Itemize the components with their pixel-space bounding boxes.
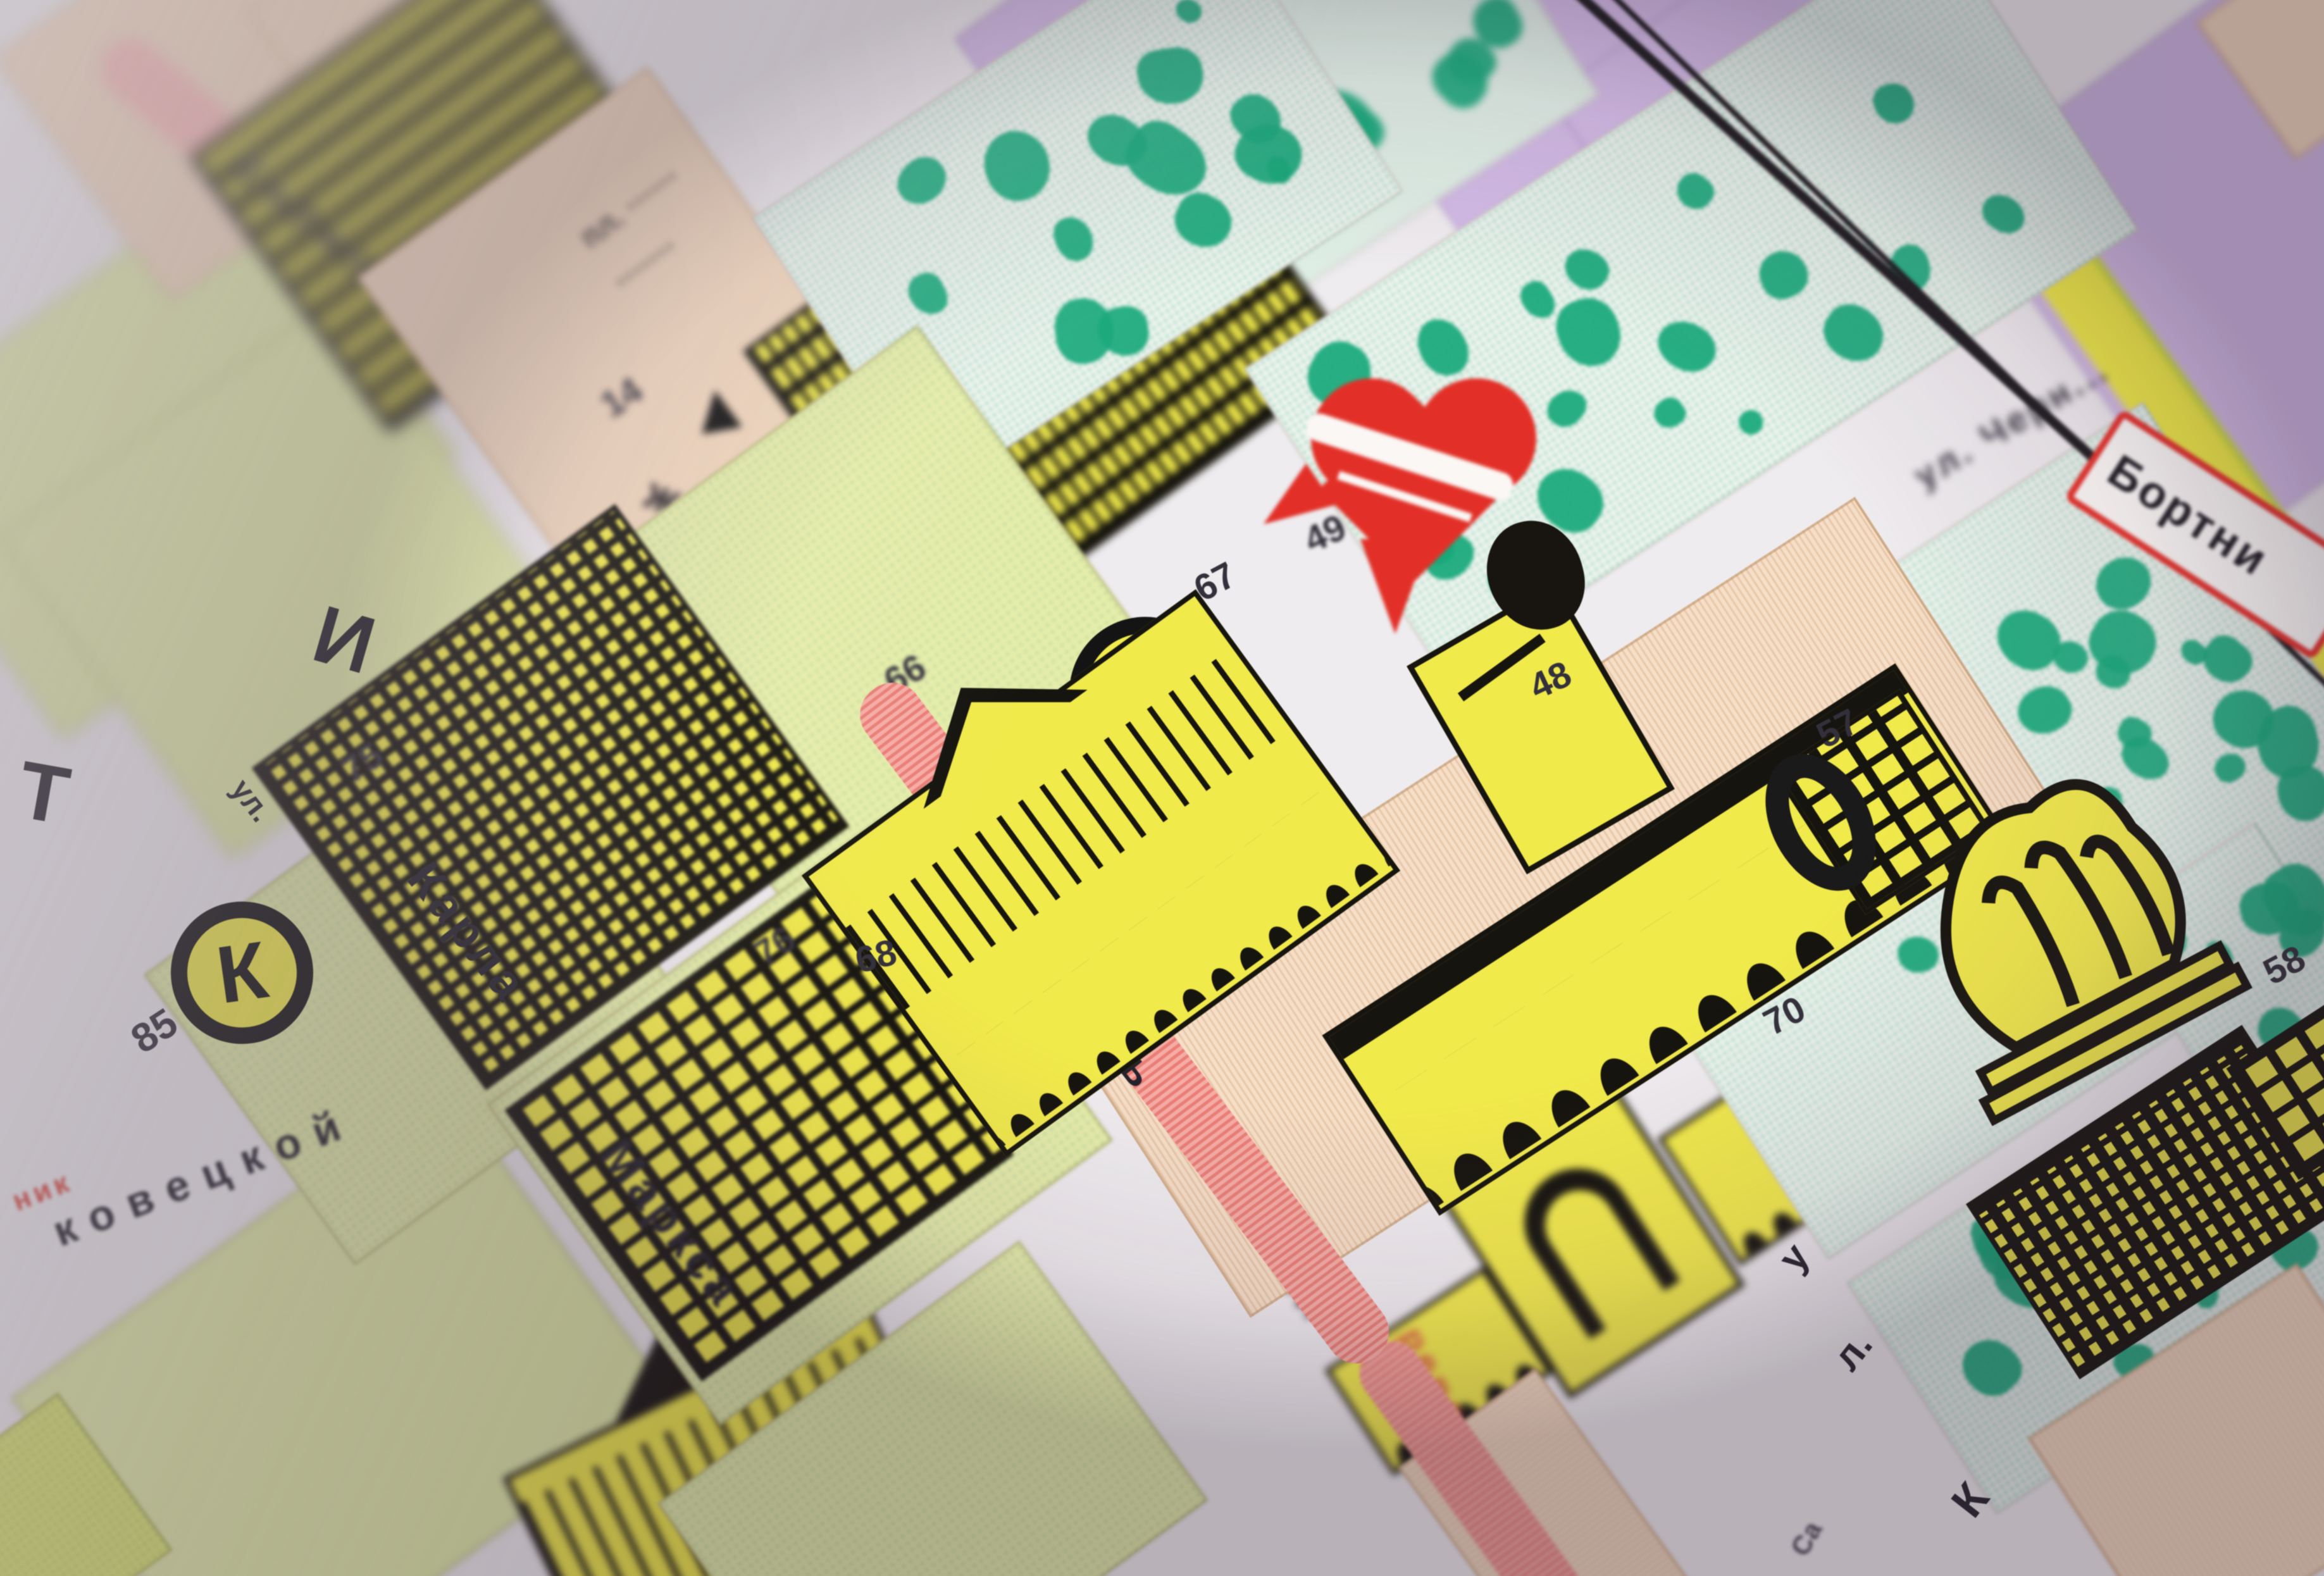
city-block — [1398, 1368, 1694, 1576]
tree-clump-icon — [1515, 276, 1560, 325]
tree-clump-icon — [1301, 80, 1385, 159]
city-block — [144, 726, 697, 1265]
poi-number-61: 61 — [995, 1416, 1048, 1470]
pink-street-main — [848, 671, 1401, 1375]
railway-line — [1566, 0, 2306, 650]
pink-street-bend — [638, 500, 929, 759]
poi-number-71: 71 — [2131, 1279, 2187, 1335]
street-name-cherny: ул. Черн... — [1906, 348, 2116, 497]
poi-number-14: 14 — [593, 369, 650, 426]
place-label-bortni: Бортни — [2099, 445, 2278, 586]
tree-clump-icon — [2057, 1275, 2089, 1310]
city-block — [555, 325, 1159, 920]
building-colonnade — [1322, 663, 2013, 1215]
blur-zone-mild: Бортни 49 ковецкой ник Маркса 66 75 76 7… — [0, 0, 2324, 1576]
building-large-block — [743, 61, 1358, 648]
tree-clump-icon — [1412, 313, 1474, 382]
pink-street-upper — [88, 26, 757, 601]
tree-clump-icon — [1649, 392, 1691, 433]
tree-clump-icon — [2090, 649, 2137, 696]
tree-clump-icon — [2244, 1057, 2298, 1107]
tree-clump-icon — [2079, 600, 2166, 685]
tree-clump-icon — [1477, 534, 1558, 614]
city-block — [2027, 1263, 2324, 1576]
arch-row — [1353, 1308, 1546, 1470]
poi-number-66: 66 — [877, 645, 933, 702]
tree-clump-icon — [1196, 164, 1286, 259]
tree-clump-icon — [2265, 1219, 2324, 1279]
tree-clump-icon — [2047, 635, 2094, 681]
tree-clump-icon — [1650, 309, 1725, 383]
tree-clump-icon — [1752, 244, 1814, 306]
poi-number-69: 69 — [1516, 1436, 1572, 1493]
tree-clump-icon — [1414, 408, 1471, 466]
street-name-nik: ник — [8, 1163, 77, 1217]
tree-clump-icon — [2275, 764, 2324, 823]
tree-clump-icon — [2318, 977, 2324, 1058]
column-row — [846, 647, 1291, 1010]
street-ul-k-l: л. — [1824, 1323, 1882, 1379]
k-badge: К — [161, 892, 322, 1053]
street-name-kovetskoy: ковецкой — [46, 1096, 361, 1256]
street-ul-k-u: у — [1770, 1235, 1818, 1280]
tree-clump-icon — [2206, 1190, 2271, 1262]
tree-clump-icon — [2204, 939, 2234, 974]
tree-clump-icon — [1226, 112, 1312, 195]
poi-number-76: 76 — [746, 917, 804, 975]
city-block — [487, 819, 1113, 1425]
tree-clump-icon — [902, 268, 953, 321]
station-center-arch — [1439, 1084, 1745, 1399]
square-label-line1: пл. ······ — [573, 159, 687, 256]
tree-clump-icon — [1115, 111, 1219, 211]
focus-zone: К 85 М И Т ул. Карла Октябрь 68 67 — [0, 0, 2324, 1576]
tree-clump-icon — [2190, 1138, 2273, 1219]
park-area — [1244, 0, 2139, 679]
monument-heart-slash2 — [1337, 471, 1472, 522]
station-left-wing — [1325, 1267, 1553, 1476]
tree-clump-icon — [1859, 650, 1910, 699]
pedestal-line — [1458, 634, 1546, 702]
pink-street-lower — [1348, 1329, 1607, 1576]
city-block — [0, 164, 457, 740]
park-area — [1100, 0, 1600, 325]
building-station-69 — [1280, 974, 1922, 1513]
tree-clump-icon — [2253, 853, 2324, 948]
tree-clump-icon — [1861, 717, 1918, 770]
park-area — [1846, 1039, 2324, 1514]
tree-clump-icon — [2094, 1117, 2168, 1194]
monument-statue-48 — [1407, 581, 1675, 874]
building-edge-partial — [2227, 993, 2324, 1180]
tree-clump-icon — [1078, 103, 1155, 179]
city-block-purple — [954, 0, 1455, 328]
park-label-2: им. — [1200, 360, 1255, 411]
gate-arch-inner — [1532, 1177, 1664, 1329]
letter-zh: ж — [638, 465, 688, 527]
monument-heart-body — [1319, 395, 1507, 583]
arch-row — [945, 783, 1390, 1146]
tree-clump-icon — [2112, 1343, 2156, 1381]
tree-clump-icon — [2010, 677, 2079, 744]
street-edge-line — [1907, 1, 2324, 671]
colonnade — [521, 1330, 942, 1576]
place-label-box: Бортни — [2064, 409, 2324, 661]
tree-clump-icon — [2089, 550, 2159, 616]
station-right-wing — [1657, 1035, 1899, 1266]
building-cube — [504, 883, 1014, 1381]
railway-line-2 — [1599, 0, 2324, 707]
monument-heart-slash — [1303, 411, 1517, 504]
tree-clump-icon — [1812, 774, 1842, 809]
tree-clump-icon — [1419, 531, 1458, 569]
square-label-line2: ······· — [607, 229, 685, 299]
building-block — [189, 0, 697, 433]
poi-number-49: 49 — [1298, 506, 1353, 562]
arch-row — [1696, 1092, 1893, 1260]
tree-clump-icon — [1174, 154, 1226, 205]
city-block-purple — [1305, 0, 1887, 382]
street-name-skoy: ской — [1235, 1211, 1343, 1329]
city-block — [1055, 497, 2051, 1318]
park-area — [1529, 402, 2324, 1260]
monument-detail — [750, 568, 836, 622]
tree-clump-icon — [1214, 20, 1291, 96]
monument-heart-left — [1311, 378, 1431, 499]
roof-band — [1329, 670, 1908, 1059]
letter-o-ring — [1743, 735, 1898, 910]
tree-clump-icon — [1095, 304, 1152, 359]
tree-clump-icon — [1885, 241, 1935, 296]
tree-clump-icon — [2194, 628, 2259, 692]
poi-number-58: 58 — [2256, 937, 2312, 993]
city-block-purple — [1548, 0, 2049, 418]
tree-clump-icon — [1986, 600, 2070, 680]
park-area — [752, 0, 1403, 497]
minor-street-line — [1314, 46, 1357, 233]
relief-graphic — [1844, 712, 2261, 1142]
street-name-kalinina: Калинина — [227, 143, 473, 361]
letters-sa: Са — [1785, 1517, 1829, 1561]
building-dark-block — [1966, 1025, 2324, 1379]
tree-clump-icon — [2209, 748, 2251, 788]
tree-clump-icon — [1263, 152, 1294, 187]
street-name-oktyabr: Октябрь — [1003, 907, 1168, 1099]
building-tall-slab — [252, 504, 850, 1090]
tree-clump-icon — [1984, 1236, 2072, 1323]
street-ul-left: ул. — [224, 772, 278, 829]
photo-vignette — [0, 0, 2324, 1576]
monument-star-spike — [1360, 539, 1430, 634]
tree-clump-icon — [974, 121, 1059, 210]
tree-clump-icon — [2272, 901, 2324, 965]
tree-clump-icon — [1972, 1213, 2049, 1289]
tree-clump-icon — [2249, 998, 2311, 1060]
street-ul-k-k: К — [1941, 1473, 1999, 1527]
tree-clump-icon — [2251, 700, 2324, 783]
monument-66-icon — [724, 547, 864, 648]
city-block — [2196, 0, 2324, 160]
tree-clump-icon — [1419, 525, 1482, 590]
blur-zone-far: Калинина — [0, 0, 2324, 1576]
tree-clump-icon — [2235, 876, 2305, 940]
city-block — [0, 1393, 173, 1576]
building-opera-68 — [802, 589, 1400, 1157]
tree-clump-icon — [1264, 78, 1304, 118]
tree-clump-icon — [1794, 880, 1872, 960]
tree-clump-icon — [1223, 85, 1290, 153]
tree-clump-icon — [1172, 0, 1207, 27]
tree-clump-icon — [1438, 30, 1503, 94]
tree-clump-icon — [1785, 745, 1873, 837]
soviet-city-map-photo: Калинина ул. Черн... ЦПКиО им. пл. ·····… — [0, 0, 2324, 1576]
tree-clump-icon — [1463, 0, 1529, 56]
monument-star-wing — [1249, 464, 1335, 545]
triangle-symbol: ▲ — [677, 362, 759, 453]
tree-clump-icon — [1814, 294, 1894, 372]
city-block — [0, 297, 564, 860]
tree-clump-icon — [1662, 880, 1687, 903]
building-61 — [502, 1300, 952, 1576]
city-block — [10, 1083, 678, 1576]
tree-clump-icon — [2190, 1277, 2222, 1311]
square-block-14 — [357, 66, 888, 609]
poi-number-85: 85 — [123, 999, 186, 1063]
city-block — [657, 1240, 1208, 1576]
tree-clump-icon — [2146, 919, 2192, 965]
tree-clump-icon — [2176, 635, 2211, 669]
tree-clump-icon — [1243, 68, 1338, 162]
statue-figure — [1476, 510, 1596, 642]
tree-clump-icon — [2174, 1236, 2226, 1298]
letter-i: И — [304, 587, 385, 693]
tree-clump-icon — [1422, 42, 1498, 118]
tree-clump-icon — [2202, 847, 2264, 904]
monument-heart-right — [1416, 378, 1536, 499]
tree-clump-icon — [1735, 406, 1767, 438]
yellow-street — [1859, 1, 2324, 705]
tree-clump-icon — [1670, 166, 1720, 216]
poi-number-57: 57 — [1810, 700, 1865, 757]
poi-number-48: 48 — [1523, 653, 1578, 709]
city-block-purple — [1949, 0, 2324, 559]
tree-clump-icon — [1525, 457, 1614, 544]
park-label: ЦПКиО — [1153, 284, 1274, 382]
k-badge-letter: К — [211, 923, 273, 1022]
tree-clump-icon — [1322, 98, 1391, 166]
tree-clump-icon — [1541, 382, 1592, 434]
tree-clump-icon — [1297, 331, 1382, 418]
pediment-inner — [904, 653, 1074, 800]
letter-t: Т — [11, 743, 77, 843]
poi-number-75: 75 — [333, 734, 391, 791]
tree-clump-icon — [888, 148, 955, 214]
pediment — [581, 1290, 771, 1430]
tree-clump-icon — [1134, 44, 1207, 109]
pavilion — [1772, 689, 1992, 915]
tree-clump-icon — [2203, 678, 2284, 759]
tree-clump-icon — [1815, 731, 1866, 780]
yellow-street-stub — [1825, 84, 1996, 169]
tree-clump-icon — [2087, 784, 2125, 819]
tree-clump-icon — [1800, 678, 1899, 779]
city-block — [0, 0, 391, 302]
tree-clump-icon — [2113, 712, 2156, 754]
poi-number-70: 70 — [1756, 988, 1812, 1044]
metro-letter: М — [1105, 642, 1184, 744]
tree-clump-icon — [2115, 728, 2177, 789]
tree-clump-icon — [1869, 78, 1920, 129]
tree-clump-icon — [2055, 980, 2118, 1041]
poi-number-68: 68 — [851, 931, 901, 982]
street-name-revolyutsii: революции — [1392, 1320, 1550, 1568]
tree-clump-icon — [1952, 1328, 2030, 1406]
blur-zone-strong: ул. Черн... ЦПКиО им. пл. ······ ·······… — [0, 0, 2324, 1576]
tree-clump-icon — [1049, 212, 1098, 266]
city-block-purple — [2164, 597, 2324, 914]
arch-row — [1373, 738, 2003, 1206]
tree-clump-icon — [1975, 188, 2031, 241]
tree-clump-icon — [1558, 241, 1615, 297]
tree-clump-icon — [1550, 290, 1629, 374]
street-name-karla: Карла — [397, 852, 539, 1012]
gate-arch — [1504, 1148, 1681, 1339]
pediment — [879, 628, 1087, 809]
monument-relief-58 — [1844, 712, 2261, 1142]
poi-number-67: 67 — [1187, 554, 1243, 610]
city-block — [245, 0, 563, 209]
tree-clump-icon — [1894, 931, 1942, 977]
tree-clump-icon — [1052, 295, 1117, 366]
metro-badge: М — [1062, 609, 1229, 776]
tree-clump-icon — [1166, 185, 1240, 256]
park-area — [2103, 822, 2324, 1231]
tree-clump-icon — [1967, 1210, 2022, 1270]
street-name-marksa: Маркса — [589, 1129, 754, 1318]
